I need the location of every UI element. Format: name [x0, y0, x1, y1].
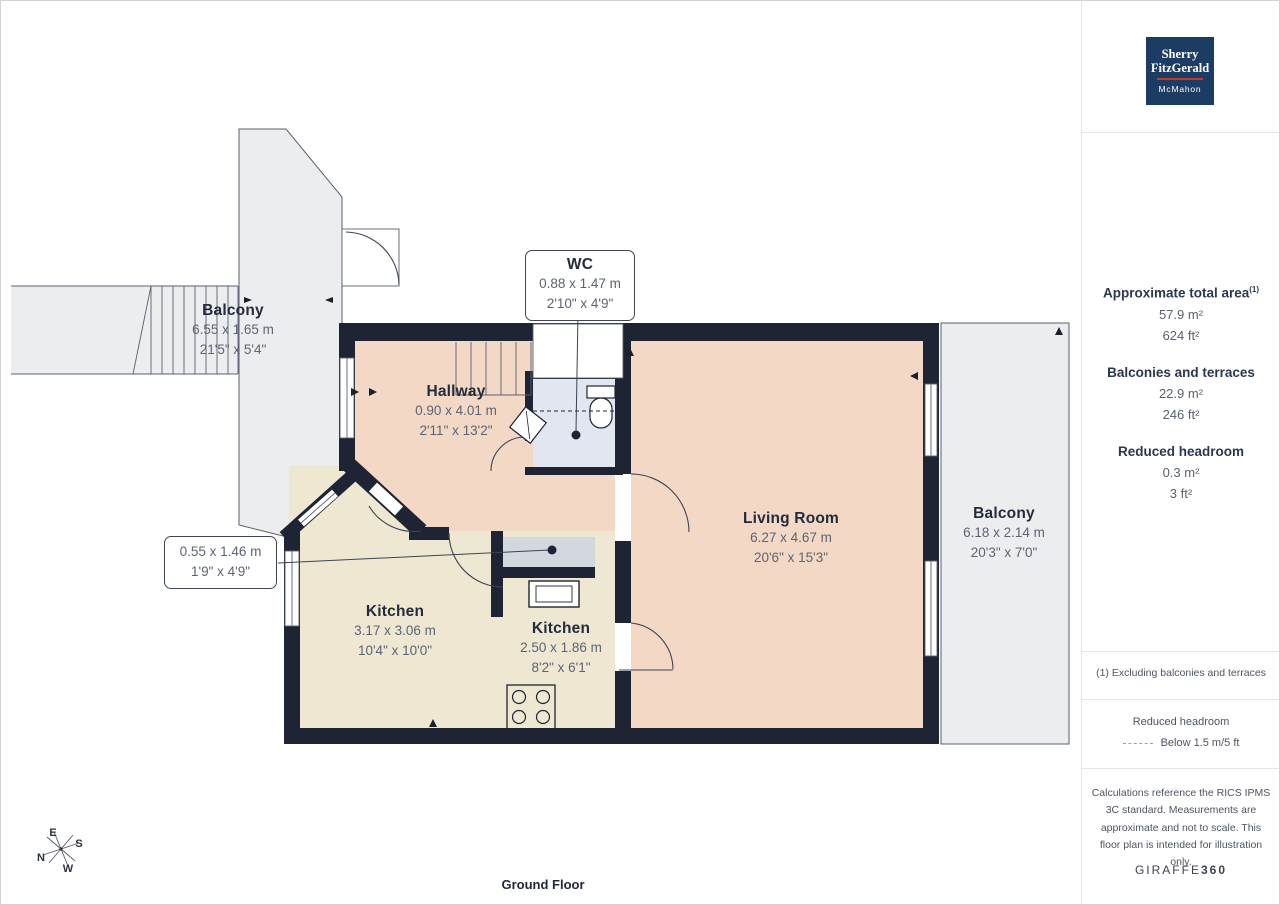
entrance-door: [342, 229, 399, 286]
room-dim-imperial: 2'10" x 4'9": [536, 294, 624, 314]
reduced-m2: 0.3 m²: [1082, 465, 1280, 480]
disclaimer-text: Calculations reference the RICS IPMS 3C …: [1091, 785, 1271, 872]
reduced-ft2: 3 ft²: [1082, 486, 1280, 501]
compass-north-label: N: [37, 852, 45, 864]
logo-rule: [1157, 78, 1203, 80]
giraffe360-brand: GIRAFFE360: [1082, 863, 1280, 877]
logo-line3: McMahon: [1159, 84, 1202, 94]
compass-south-label: S: [75, 838, 82, 850]
balcony-right-area: [941, 323, 1069, 744]
logo-line2: FitzGerald: [1151, 62, 1209, 75]
exterior-stairs: [11, 286, 238, 374]
room-dim-metric: 0.88 x 1.47 m: [536, 274, 624, 294]
excluding-footnote: (1) Excluding balconies and terraces: [1082, 667, 1280, 679]
room-name: WC: [536, 256, 624, 274]
balconies-m2: 22.9 m²: [1082, 386, 1280, 401]
legend-row: Below 1.5 m/5 ft: [1082, 737, 1280, 749]
store-callout: 0.55 x 1.46 m 1'9" x 4'9": [164, 536, 277, 589]
balconies-heading: Balconies and terraces: [1082, 365, 1280, 380]
floor-plan-page: E S N W Balcony 6.55 x 1.65 m 21'5" x 5'…: [0, 0, 1280, 905]
toilet-icon: [587, 386, 615, 428]
floor-title: Ground Floor: [501, 877, 584, 892]
total-area-ft2: 624 ft²: [1082, 328, 1280, 343]
sidebar-section-divider: [1082, 699, 1280, 700]
wc-callout: WC 0.88 x 1.47 m 2'10" x 4'9": [525, 250, 635, 321]
agency-logo: Sherry FitzGerald McMahon: [1146, 37, 1214, 105]
reduced-headroom-legend: Reduced headroom Below 1.5 m/5 ft: [1082, 716, 1280, 749]
sink-icon: [529, 581, 579, 607]
compass-east-label: E: [49, 827, 56, 839]
floor-plan-drawing: E S N W: [1, 1, 1081, 905]
dashed-line-sample: [1123, 743, 1153, 744]
total-area-heading: Approximate total area(1): [1082, 285, 1280, 301]
compass-icon: E S N W: [37, 827, 83, 875]
total-area-m2: 57.9 m²: [1082, 307, 1280, 322]
room-dim-metric: 0.55 x 1.46 m: [175, 542, 266, 562]
legend-desc: Below 1.5 m/5 ft: [1161, 737, 1240, 749]
sidebar-section-divider: [1082, 768, 1280, 769]
compass-west-label: W: [63, 863, 74, 875]
brand-suffix: 360: [1201, 863, 1227, 877]
reduced-heading: Reduced headroom: [1082, 444, 1280, 459]
balconies-ft2: 246 ft²: [1082, 407, 1280, 422]
sidebar-section-divider: [1082, 132, 1280, 133]
sidebar-section-divider: [1082, 651, 1280, 652]
legend-title: Reduced headroom: [1082, 716, 1280, 728]
area-stats: Approximate total area(1) 57.9 m² 624 ft…: [1082, 285, 1280, 501]
room-dim-imperial: 1'9" x 4'9": [175, 562, 266, 582]
logo-line1: Sherry: [1162, 48, 1199, 61]
footnote-marker: (1): [1249, 285, 1259, 294]
